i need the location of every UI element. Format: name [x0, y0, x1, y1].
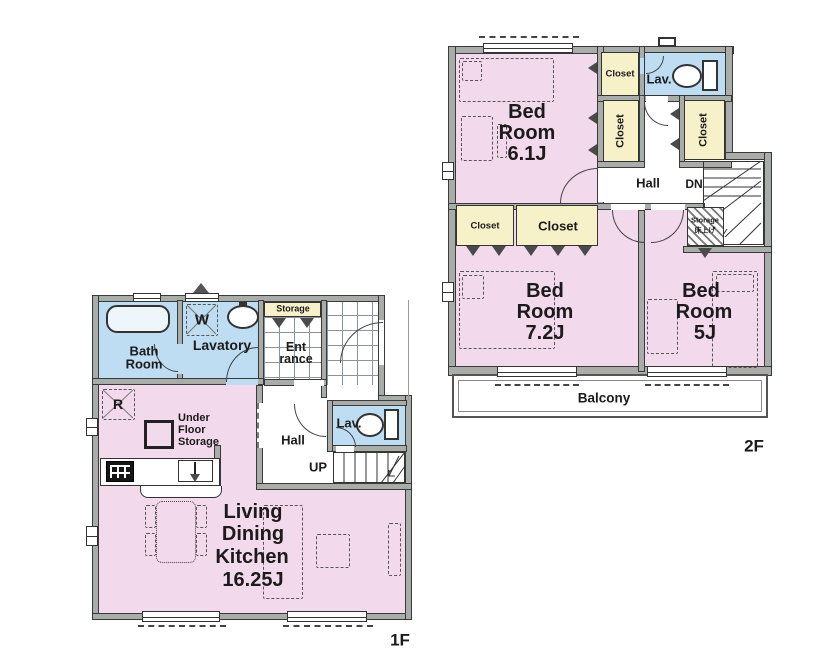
f2-closet-right-label: Closet	[699, 113, 710, 147]
f2-storage-sublabel: 床上げ	[695, 228, 716, 235]
f2-wall-right-upper	[725, 46, 733, 159]
f2-side-window-72	[442, 282, 454, 302]
f1-shutter-line-b	[283, 625, 373, 627]
f2-hall-label: Hall	[636, 177, 660, 190]
f2-bedroom61-label-2: Room	[499, 123, 556, 143]
f2-closet-top-label: Closet	[605, 69, 634, 79]
f1-ufs-label-1: Under	[178, 413, 210, 424]
folding-door-marker	[588, 112, 597, 124]
f2-bedroom5-label-1: Bed	[682, 281, 720, 301]
f1-chair	[145, 533, 156, 556]
f2-bedroom61-label-1: Bed	[508, 102, 546, 122]
f2-toilet-bowl	[672, 64, 702, 88]
f2-door-gap-bed61	[598, 168, 604, 202]
f1-ufs-label-2: Floor	[178, 425, 206, 436]
folding-door-marker	[698, 248, 712, 258]
f1-door-gap-hall	[294, 380, 324, 386]
f2-shutter-line-72	[495, 384, 579, 386]
f1-sink-faucet	[239, 302, 247, 307]
f1-floor-label: 1F	[390, 632, 410, 649]
folding-door-marker	[670, 138, 679, 150]
f2-lav-label: Lav.	[646, 73, 671, 86]
f1-side-window-living	[86, 526, 98, 546]
f2-wall-left	[448, 46, 456, 376]
f2-shutter-line-5	[645, 384, 729, 386]
f1-fridge-mark: R	[113, 397, 123, 411]
folding-door-marker	[578, 246, 592, 256]
f1-ldk-label-2: Dining	[222, 524, 284, 544]
f1-entrance-label-2: rance	[279, 353, 312, 366]
f2-closet-b-label: Closet	[538, 220, 578, 233]
f2-side-window-61	[442, 162, 454, 180]
f1-storage-label: Storage	[276, 305, 310, 314]
f1-stove-grate	[110, 465, 130, 478]
f2-closet-left-label: Closet	[616, 114, 627, 148]
folding-door-marker	[670, 108, 679, 120]
f1-ufs-label-3: Storage	[178, 437, 219, 448]
f2-bedroom72-area: 7.2J	[526, 323, 565, 343]
floor-plan-canvas: Bed Room 6.1J Closet Lav. Closet Closet …	[0, 0, 837, 672]
f2-closet-a-label: Closet	[470, 221, 499, 231]
f1-bathtub	[106, 305, 170, 333]
f2-window-top	[483, 43, 573, 53]
f2-bed-5-pillow	[716, 274, 754, 292]
f1-window-lavatory	[185, 293, 219, 302]
f1-under-floor-storage-hatch	[144, 420, 174, 449]
f1-exterior-line	[408, 300, 409, 400]
f2-balcony-door-72	[497, 366, 577, 377]
f1-up-label: UP	[309, 461, 327, 474]
f2-bedroom5-area: 5J	[694, 323, 716, 343]
f1-wall-left	[92, 295, 99, 620]
f1-toilet-tank	[384, 409, 399, 440]
f1-tv-board	[388, 523, 401, 576]
f2-bedroom72-label-1: Bed	[526, 281, 564, 301]
f2-wall-annex-right	[764, 152, 772, 376]
f1-hall-label: Hall	[281, 434, 305, 447]
f1-counter-end	[140, 486, 222, 498]
f2-floor-label: 2F	[744, 438, 764, 455]
f2-bed-61	[459, 58, 554, 102]
f1-stove	[106, 461, 134, 482]
f2-balcony-label: Balcony	[578, 391, 631, 405]
f1-sink-drain-arrow	[190, 474, 200, 482]
folding-door-marker	[551, 246, 565, 256]
f2-storage-label: Storage	[691, 216, 719, 224]
folding-door-marker	[300, 318, 314, 328]
f2-roof-vent	[658, 37, 676, 47]
f1-chair	[196, 505, 207, 528]
f1-chair	[145, 505, 156, 528]
f2-bed-72-pillow	[462, 275, 484, 299]
folding-door-marker	[588, 144, 597, 156]
f2-shutter-line-top	[479, 36, 579, 38]
f2-bed-61-pillow	[462, 61, 482, 81]
folding-door-marker	[492, 246, 506, 256]
f1-wall-hall-south	[256, 483, 412, 490]
f1-ldk-area: 16.25J	[222, 570, 283, 590]
f2-balcony-door-5	[647, 366, 727, 377]
f2-bedroom72-label-2: Room	[517, 302, 574, 322]
f1-stairs-up	[333, 452, 405, 483]
f2-bedroom5-label-2: Room	[676, 302, 733, 322]
f1-sink-drain-line	[194, 462, 196, 474]
f1-opening-hall-ldk	[257, 403, 263, 448]
f1-side-window-kitchen	[86, 418, 98, 436]
f1-ldk-label-1: Living	[224, 502, 283, 522]
folding-door-marker	[588, 62, 597, 74]
f2-wall-stairs-south	[683, 246, 772, 253]
f1-lavatory-label: Lavatory	[193, 338, 251, 352]
f2-desk-5	[647, 299, 678, 354]
f1-roof-vent	[193, 283, 209, 293]
f1-window-bath	[133, 293, 161, 302]
f1-ldk-label-3: Kitchen	[215, 547, 288, 567]
folding-door-marker	[466, 246, 480, 256]
f1-lav-label: Lav.	[336, 417, 361, 430]
f1-low-table	[316, 534, 350, 568]
f1-chair	[196, 533, 207, 556]
f1-dining-table	[156, 501, 196, 563]
folding-door-marker	[272, 318, 286, 328]
f1-window-living-b	[287, 611, 367, 622]
folding-door-marker	[524, 246, 538, 256]
f1-bath-label-2: Room	[126, 358, 163, 371]
f1-washer-mark: W	[195, 313, 209, 328]
f1-shutter-line-a	[138, 625, 226, 627]
f2-storage-box	[687, 207, 724, 246]
f2-dn-label: DN	[685, 178, 702, 190]
f2-toilet-tank	[702, 60, 718, 91]
f2-bedroom61-area: 6.1J	[508, 144, 547, 164]
f1-wall-right	[405, 395, 412, 620]
f1-lavatory-sink	[227, 305, 259, 329]
f2-wall-hall-north-a	[597, 161, 645, 168]
f1-window-living-a	[142, 611, 220, 622]
f2-desk-61	[461, 116, 493, 161]
